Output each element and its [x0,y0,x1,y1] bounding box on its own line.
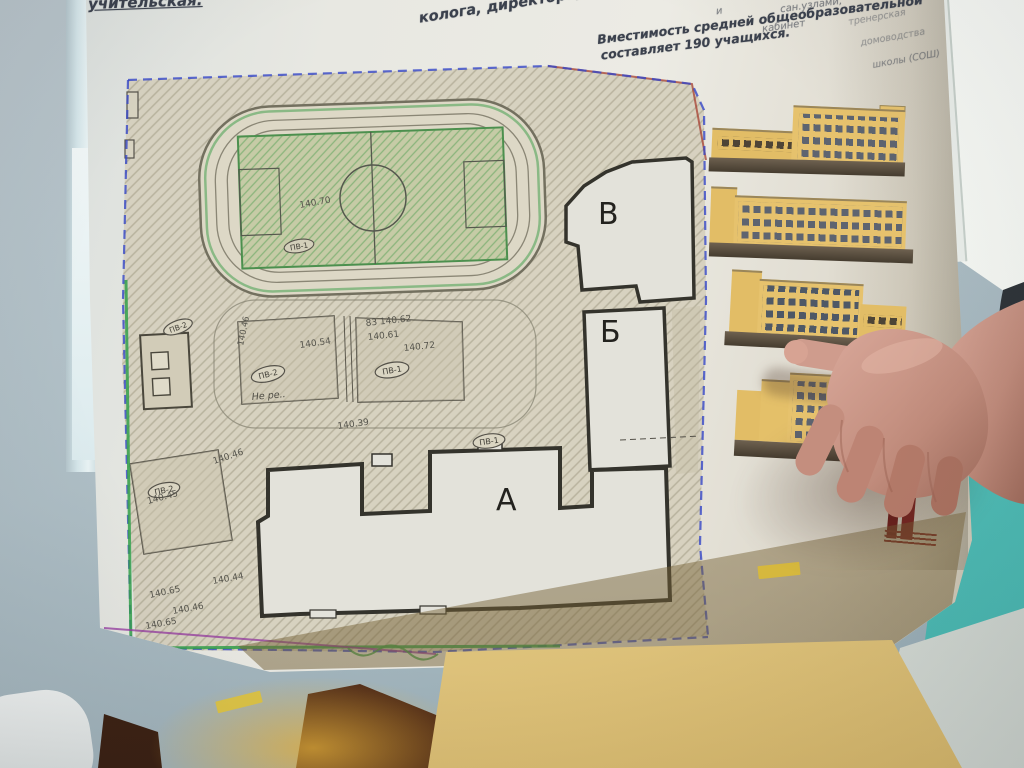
index-fingertip [784,340,808,364]
photo-scene: учительская. колога, директора, Вместимо… [0,0,1024,768]
pointing-hand [0,0,1024,768]
